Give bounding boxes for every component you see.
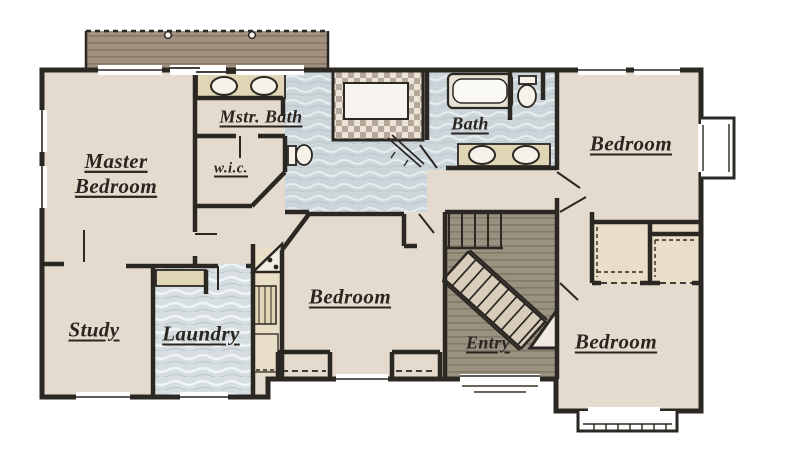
- toilet-icon: [518, 76, 536, 107]
- entry-label: Entry: [466, 333, 510, 354]
- mstr-bath-label: Mstr. Bath: [219, 107, 302, 128]
- laundry-counter: [156, 270, 206, 286]
- master-bedroom-label-line1: Master: [75, 149, 157, 174]
- bath-label: Bath: [451, 114, 489, 135]
- window-icon: [578, 65, 626, 75]
- sink-icon: [211, 77, 237, 95]
- master-bedroom-label-line2: Bedroom: [75, 174, 157, 199]
- floor-plan-drawing: [0, 0, 800, 469]
- wic-label: w.i.c.: [214, 161, 248, 178]
- window-icon: [37, 166, 47, 208]
- sink-icon: [469, 146, 495, 164]
- sliding-door-icon: [170, 65, 226, 75]
- window-icon: [37, 110, 47, 152]
- shower-basin: [344, 83, 408, 119]
- bathtub-icon: [448, 74, 512, 108]
- window-icon: [236, 65, 304, 75]
- sink-icon: [513, 146, 539, 164]
- master-bedroom-label: Master Bedroom: [75, 149, 157, 199]
- sink-icon: [251, 77, 277, 95]
- front-door: [460, 374, 540, 392]
- bedroom-center-label: Bedroom: [309, 285, 391, 310]
- window-icon: [336, 374, 388, 384]
- toilet-icon: [288, 145, 312, 165]
- bedroom-lower-right-label: Bedroom: [575, 330, 657, 355]
- window-icon: [634, 65, 680, 75]
- window-icon: [76, 392, 130, 402]
- study-label: Study: [68, 318, 119, 343]
- laundry-label: Laundry: [162, 322, 239, 347]
- deck-floor: [86, 31, 328, 70]
- closet-floor-right: [592, 222, 701, 283]
- bedroom-upper-right-label: Bedroom: [590, 132, 672, 157]
- window-icon: [180, 392, 228, 402]
- bay-window-right: [698, 118, 734, 178]
- window-icon: [98, 65, 162, 75]
- floor-plan: Master Bedroom Mstr. Bath w.i.c. Bath Be…: [0, 0, 800, 469]
